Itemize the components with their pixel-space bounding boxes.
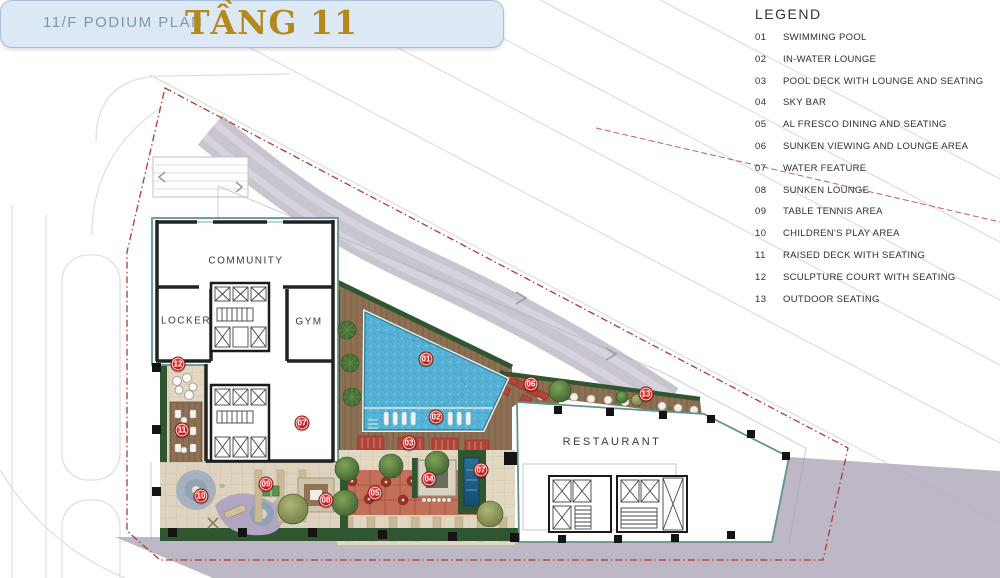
legend-item: 10 CHILDREN'S PLAY AREA	[755, 228, 997, 250]
restaurant	[517, 402, 789, 542]
legend-rows: 01 SWIMMING POOL 02 IN-WATER LOUNGE 03 P…	[755, 32, 997, 315]
legend-heading: LEGEND	[755, 6, 997, 22]
legend-item-number: 13	[755, 294, 783, 305]
legend-item-number: 02	[755, 54, 783, 65]
legend-item: 02 IN-WATER LOUNGE	[755, 54, 997, 76]
area-marker-08: 08	[319, 493, 334, 508]
podium-plan	[152, 218, 790, 545]
legend-item-number: 09	[755, 206, 783, 217]
legend-item-label: POOL DECK WITH LOUNGE AND SEATING	[783, 76, 997, 87]
legend-item: 08 SUNKEN LOUNGE	[755, 185, 997, 207]
legend-item: 11 RAISED DECK WITH SEATING	[755, 250, 997, 272]
core-upper	[211, 283, 269, 351]
ramp	[153, 157, 248, 197]
legend-item: 12 SCULPTURE COURT WITH SEATING	[755, 272, 997, 294]
legend-item-number: 01	[755, 32, 783, 43]
legend-item-label: WATER FEATURE	[783, 163, 997, 174]
floor-code-label: 11/F PODIUM PLAN	[43, 14, 203, 31]
legend-item-number: 06	[755, 141, 783, 152]
legend-item: 09 TABLE TENNIS AREA	[755, 206, 997, 228]
legend: LEGEND 01 SWIMMING POOL 02 IN-WATER LOUN…	[755, 6, 997, 315]
title-box: 11/F PODIUM PLAN TẦNG 11	[0, 0, 504, 48]
legend-item-number: 05	[755, 119, 783, 130]
area-marker-09: 09	[259, 477, 274, 492]
legend-item: 13 OUTDOOR SEATING	[755, 294, 997, 316]
legend-item-label: SUNKEN LOUNGE	[783, 185, 997, 196]
area-marker-03: 03	[402, 436, 417, 451]
legend-item: 04 SKY BAR	[755, 97, 997, 119]
room-label-gym: GYM	[295, 317, 322, 328]
area-marker-12: 12	[171, 357, 186, 372]
legend-item-label: SCULPTURE COURT WITH SEATING	[783, 272, 997, 283]
area-marker-07: 07	[295, 416, 310, 431]
area-marker-06: 06	[524, 377, 539, 392]
legend-item-number: 08	[755, 185, 783, 196]
page-title: TẦNG 11	[185, 3, 358, 42]
podium-plan-sheet: 11/F PODIUM PLAN TẦNG 11 LEGEND 01 SWIMM…	[0, 0, 1000, 578]
legend-item: 03 POOL DECK WITH LOUNGE AND SEATING	[755, 76, 997, 98]
legend-item-label: TABLE TENNIS AREA	[783, 206, 997, 217]
legend-item-label: SKY BAR	[783, 97, 997, 108]
legend-item: 07 WATER FEATURE	[755, 163, 997, 185]
restaurant-core-b	[617, 476, 687, 532]
legend-item-number: 11	[755, 250, 783, 261]
area-marker-02: 02	[429, 410, 444, 425]
room-label-restaurant: RESTAURANT	[563, 436, 662, 448]
legend-item-label: RAISED DECK WITH SEATING	[783, 250, 997, 261]
room-label-community: COMMUNITY	[208, 256, 283, 267]
restaurant-core-a	[549, 476, 611, 532]
legend-item-label: SWIMMING POOL	[783, 32, 997, 43]
area-marker-04: 04	[422, 472, 437, 487]
area-marker-05: 05	[368, 486, 383, 501]
legend-item-number: 07	[755, 163, 783, 174]
legend-item-number: 03	[755, 76, 783, 87]
legend-item-number: 12	[755, 272, 783, 283]
legend-item-number: 04	[755, 97, 783, 108]
legend-item: 05 AL FRESCO DINING AND SEATING	[755, 119, 997, 141]
legend-item-number: 10	[755, 228, 783, 239]
legend-item-label: IN-WATER LOUNGE	[783, 54, 997, 65]
legend-item-label: AL FRESCO DINING AND SEATING	[783, 119, 997, 130]
legend-item-label: SUNKEN VIEWING AND LOUNGE AREA	[783, 141, 997, 152]
area-marker-13: 13	[639, 387, 654, 402]
legend-item: 06 SUNKEN VIEWING AND LOUNGE AREA	[755, 141, 997, 163]
legend-item: 01 SWIMMING POOL	[755, 32, 997, 54]
legend-item-label: OUTDOOR SEATING	[783, 294, 997, 305]
area-marker-07-b: 07	[474, 463, 489, 478]
legend-item-label: CHILDREN'S PLAY AREA	[783, 228, 997, 239]
area-marker-11: 11	[175, 423, 190, 438]
room-label-locker: LOCKER	[161, 316, 211, 327]
area-marker-01: 01	[419, 352, 434, 367]
core-lower	[211, 385, 269, 461]
area-marker-10: 10	[194, 489, 209, 504]
